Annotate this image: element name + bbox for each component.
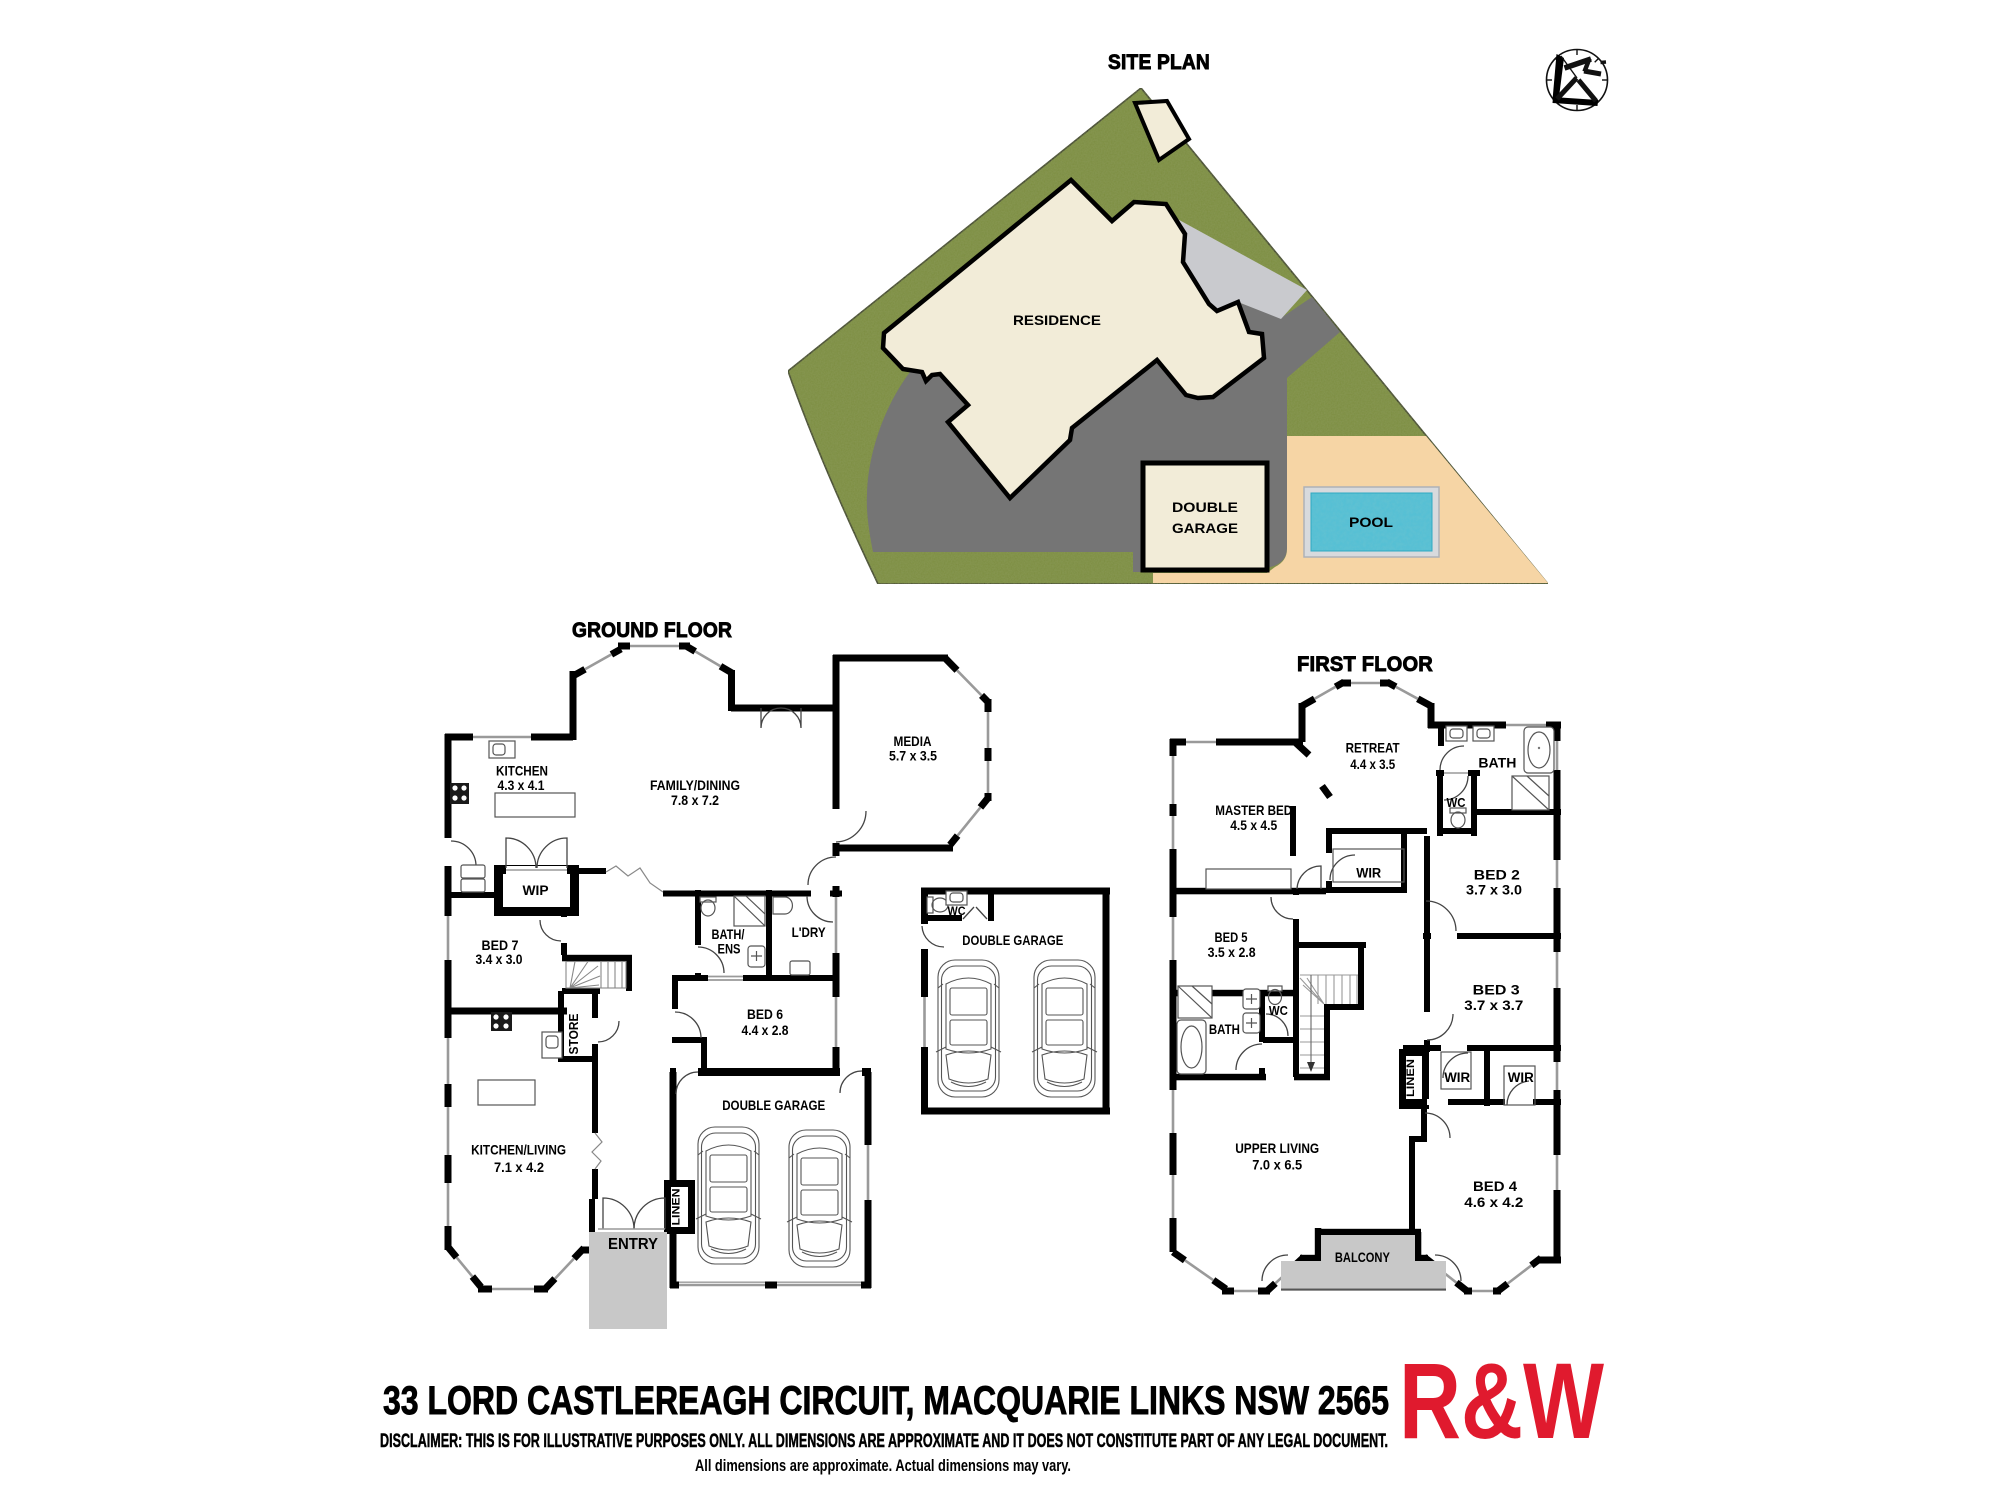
svg-text:BED 3: BED 3 bbox=[1473, 981, 1520, 997]
svg-text:4.5 x 4.5: 4.5 x 4.5 bbox=[1230, 817, 1277, 833]
svg-text:5.7 x 3.5: 5.7 x 3.5 bbox=[889, 748, 937, 764]
svg-text:WIR: WIR bbox=[1508, 1070, 1534, 1085]
svg-text:4.6 x 4.2: 4.6 x 4.2 bbox=[1464, 1194, 1523, 1210]
svg-text:MASTER BED: MASTER BED bbox=[1215, 802, 1292, 818]
svg-text:All dimensions are approximate: All dimensions are approximate. Actual d… bbox=[695, 1456, 1071, 1475]
svg-text:RESIDENCE: RESIDENCE bbox=[1013, 312, 1101, 328]
svg-text:4.3 x 4.1: 4.3 x 4.1 bbox=[498, 777, 545, 793]
svg-text:4.4 x 3.5: 4.4 x 3.5 bbox=[1350, 756, 1395, 772]
svg-text:WIR: WIR bbox=[1356, 866, 1381, 881]
svg-text:FAMILY/DINING: FAMILY/DINING bbox=[650, 777, 740, 793]
svg-text:RETREAT: RETREAT bbox=[1346, 740, 1400, 756]
svg-text:LINEN: LINEN bbox=[671, 1188, 683, 1225]
svg-text:WC: WC bbox=[948, 904, 966, 918]
svg-text:WC: WC bbox=[1447, 796, 1466, 810]
svg-text:ENS: ENS bbox=[718, 941, 741, 957]
svg-text:WC: WC bbox=[1269, 1004, 1288, 1018]
svg-text:R&W: R&W bbox=[1399, 1340, 1604, 1461]
svg-text:BATH/: BATH/ bbox=[712, 926, 745, 942]
svg-text:POOL: POOL bbox=[1349, 514, 1393, 530]
svg-text:DOUBLE: DOUBLE bbox=[1172, 499, 1238, 515]
svg-text:SITE PLAN: SITE PLAN bbox=[1108, 51, 1210, 74]
svg-text:ENTRY: ENTRY bbox=[608, 1236, 658, 1253]
svg-text:GARAGE: GARAGE bbox=[1172, 520, 1238, 536]
svg-text:DISCLAIMER: THIS IS FOR ILLUST: DISCLAIMER: THIS IS FOR ILLUSTRATIVE PUR… bbox=[380, 1431, 1388, 1452]
svg-text:L'DRY: L'DRY bbox=[792, 924, 827, 940]
svg-text:UPPER LIVING: UPPER LIVING bbox=[1235, 1140, 1319, 1156]
svg-text:3.4 x 3.0: 3.4 x 3.0 bbox=[476, 951, 523, 967]
svg-text:7.8 x 7.2: 7.8 x 7.2 bbox=[671, 792, 719, 808]
svg-text:3.7 x 3.7: 3.7 x 3.7 bbox=[1464, 997, 1523, 1013]
svg-text:BED 6: BED 6 bbox=[747, 1006, 783, 1022]
svg-text:3.5 x 2.8: 3.5 x 2.8 bbox=[1208, 944, 1256, 960]
svg-text:BED 2: BED 2 bbox=[1474, 867, 1520, 883]
svg-text:BATH: BATH bbox=[1209, 1021, 1240, 1037]
svg-text:GROUND FLOOR: GROUND FLOOR bbox=[572, 619, 732, 642]
svg-text:7.1 x 4.2: 7.1 x 4.2 bbox=[494, 1159, 544, 1175]
svg-text:KITCHEN/LIVING: KITCHEN/LIVING bbox=[471, 1142, 566, 1158]
svg-text:DOUBLE GARAGE: DOUBLE GARAGE bbox=[962, 932, 1063, 948]
svg-text:LINEN: LINEN bbox=[1405, 1059, 1417, 1097]
svg-text:FIRST FLOOR: FIRST FLOOR bbox=[1297, 653, 1433, 676]
svg-text:STORE: STORE bbox=[566, 1013, 581, 1054]
svg-text:33 LORD CASTLEREAGH CIRCUIT, M: 33 LORD CASTLEREAGH CIRCUIT, MACQUARIE L… bbox=[383, 1379, 1389, 1423]
svg-text:BATH: BATH bbox=[1478, 755, 1516, 771]
svg-text:BED 4: BED 4 bbox=[1473, 1178, 1517, 1194]
svg-text:WIR: WIR bbox=[1444, 1070, 1470, 1085]
svg-text:3.7 x 3.0: 3.7 x 3.0 bbox=[1466, 882, 1522, 898]
svg-text:7.0 x 6.5: 7.0 x 6.5 bbox=[1252, 1157, 1302, 1173]
svg-text:WIP: WIP bbox=[523, 883, 549, 898]
svg-text:BALCONY: BALCONY bbox=[1335, 1249, 1391, 1265]
svg-text:4.4 x 2.8: 4.4 x 2.8 bbox=[742, 1022, 789, 1038]
svg-text:BED 5: BED 5 bbox=[1215, 929, 1248, 945]
svg-text:DOUBLE GARAGE: DOUBLE GARAGE bbox=[722, 1097, 825, 1113]
